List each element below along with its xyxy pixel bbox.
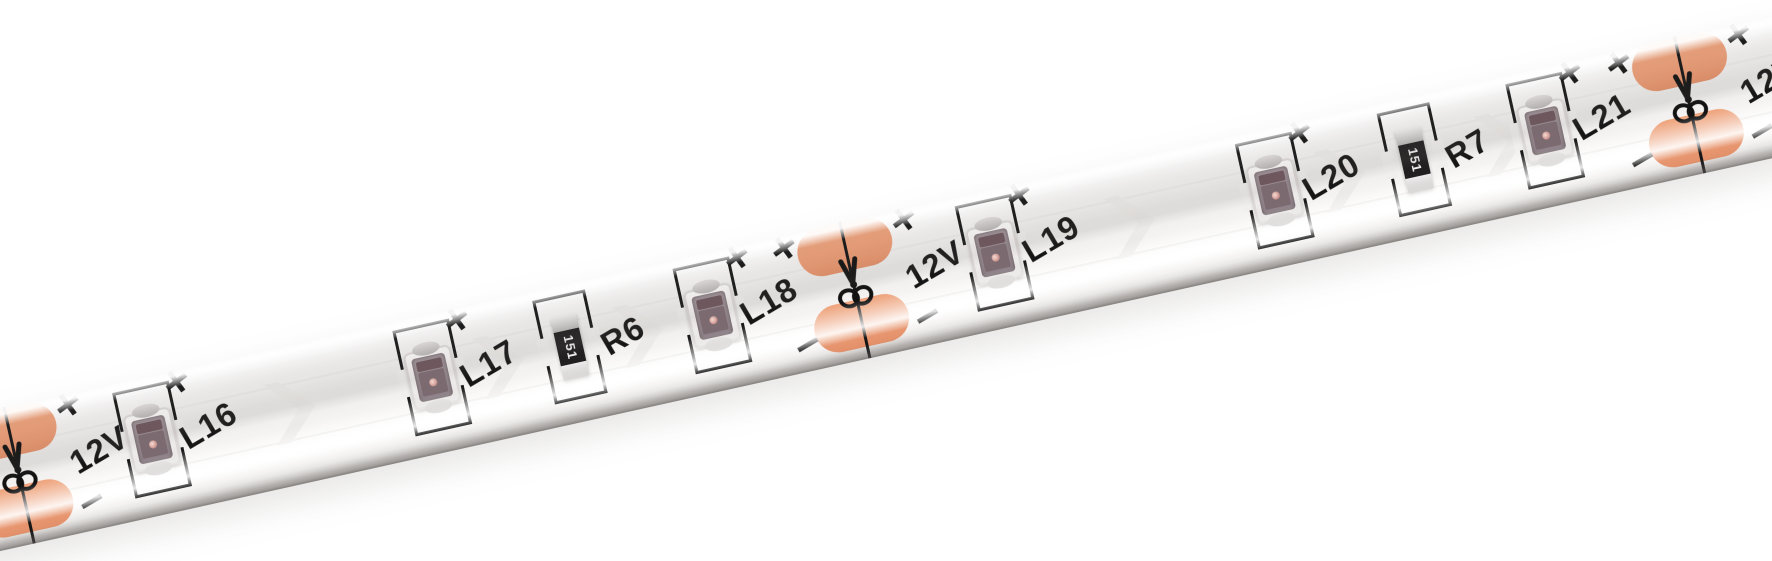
cut-point: + − + − 12V — [3, 407, 33, 544]
cut-point: + − + − 12V — [839, 222, 869, 359]
led-strip: + − + − 12V + − + − 12V — [0, 0, 1772, 558]
led-emitter-window — [691, 290, 734, 340]
led-emitter-window — [973, 228, 1016, 278]
led-die — [991, 253, 1001, 263]
resistor-code: 151 — [1405, 146, 1423, 173]
resistor-code: 151 — [561, 333, 579, 360]
led-die — [1271, 191, 1281, 201]
led-emitter-window — [411, 352, 454, 402]
led-die — [148, 440, 158, 450]
led-die — [429, 378, 439, 388]
led-die — [709, 315, 719, 325]
cut-point: + − + − 12V — [1674, 37, 1704, 174]
led-die — [1542, 131, 1552, 141]
product-photo: + − + − 12V + − + − 12V — [0, 0, 1772, 561]
led-emitter-window — [1253, 165, 1296, 215]
led-emitter-window — [1524, 106, 1567, 156]
led-emitter-window — [131, 414, 174, 464]
